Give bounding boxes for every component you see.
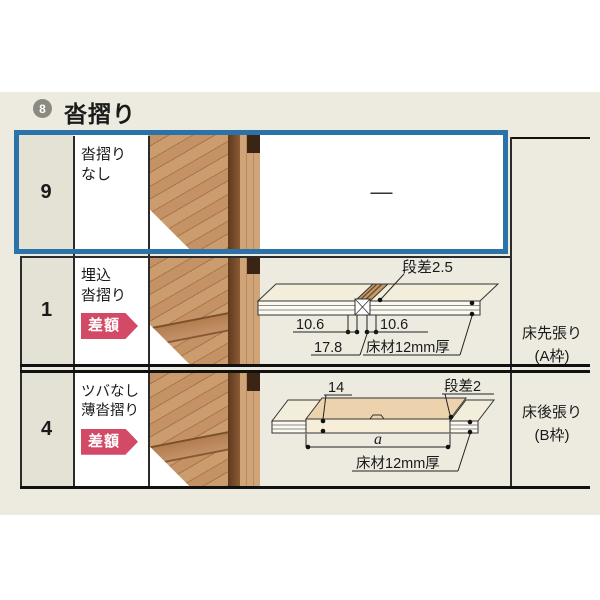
frame-a-label: 床先張り (A枠) xyxy=(512,323,592,368)
row4-cross-section-diagram: 14 段差2 a 床材12mm厚 xyxy=(256,373,510,486)
row1-flooring-photo xyxy=(148,257,260,364)
material-label: 床材12mm厚 xyxy=(356,455,440,472)
frame-b-line1: 床後張り xyxy=(512,402,592,425)
selected-row-highlight xyxy=(14,130,508,254)
door-frame-icon xyxy=(228,257,240,364)
frame-b-label: 床後張り (B枠) xyxy=(512,402,592,447)
catalog-page: 8 沓摺り 9 沓摺り なし — 1 埋込 沓摺り 差額 4 ツバなし 薄沓摺り… xyxy=(0,0,600,600)
row1-price-diff-badge: 差額 xyxy=(81,313,138,339)
section-title: 沓摺り xyxy=(64,95,136,129)
dim-left-label: 10.6 xyxy=(296,317,324,333)
row4-price-diff-badge: 差額 xyxy=(81,429,138,455)
row1-number-cell: 1 xyxy=(20,256,73,365)
row4-number-cell: 4 xyxy=(20,373,73,486)
section-b-top-border xyxy=(20,370,590,373)
right-column-top-border xyxy=(512,137,590,139)
row-divider-9-1 xyxy=(20,256,510,258)
row4-flooring-photo xyxy=(148,373,260,486)
door-frame-icon xyxy=(228,373,240,486)
section-number-icon: 8 xyxy=(33,99,52,118)
step-label: 段差2 xyxy=(444,378,481,395)
frame-a-line2: (A枠) xyxy=(512,346,592,369)
section-a-bottom-border xyxy=(20,364,590,367)
row1-cross-section-diagram: 段差2.5 10.6 10.6 17.8 床材12mm厚 xyxy=(256,253,510,365)
width-variable-label: a xyxy=(374,431,382,448)
frame-a-line1: 床先張り xyxy=(512,323,592,346)
row1-label-line2: 沓摺り xyxy=(81,286,155,306)
dim-total-label: 17.8 xyxy=(314,340,342,356)
row4-label-line1: ツバなし xyxy=(81,383,155,402)
row4-label-line2: 薄沓摺り xyxy=(81,402,155,421)
table-bottom-border xyxy=(20,486,590,489)
material-label: 床材12mm厚 xyxy=(366,339,450,356)
dim-step-label: 段差2.5 xyxy=(402,259,453,276)
thickness-label: 14 xyxy=(328,380,344,396)
dim-right-label: 10.6 xyxy=(380,317,408,333)
frame-b-line2: (B枠) xyxy=(512,425,592,448)
row1-label-line1: 埋込 xyxy=(81,266,155,286)
